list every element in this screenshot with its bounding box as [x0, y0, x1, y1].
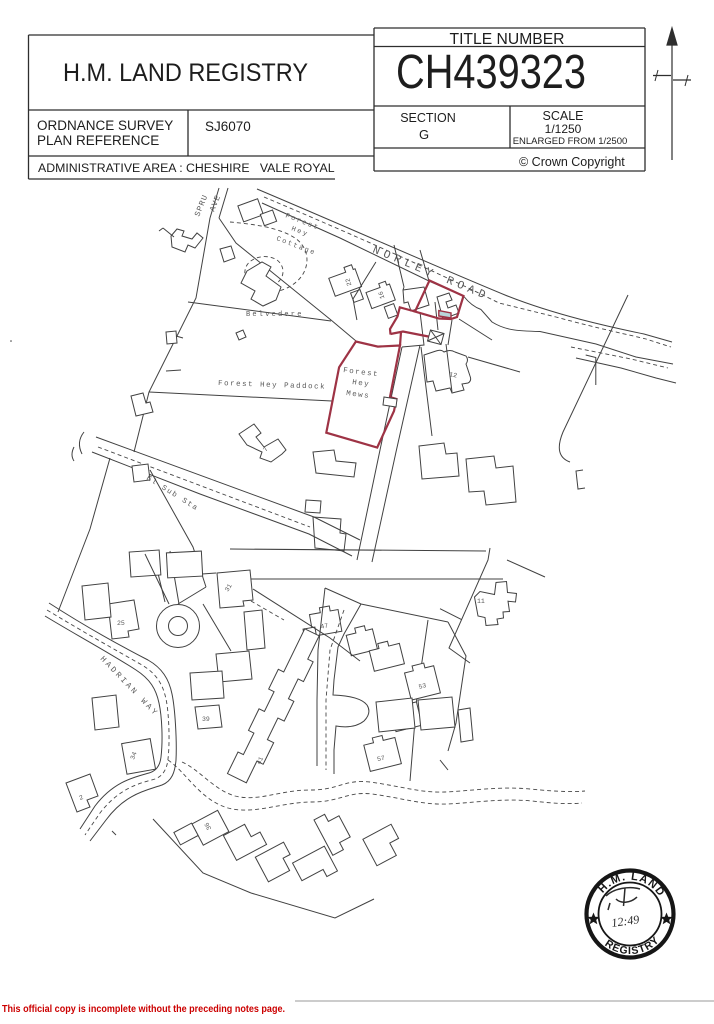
svg-text:11: 11 — [477, 598, 485, 605]
svg-text:ADMINISTRATIVE AREA : CHESHIRE: ADMINISTRATIVE AREA : CHESHIRE VALE ROYA… — [38, 161, 335, 175]
svg-text:G: G — [419, 127, 429, 142]
svg-text:© Crown Copyright: © Crown Copyright — [519, 155, 625, 169]
svg-text:SCALE: SCALE — [543, 109, 584, 123]
svg-text:Belvedere: Belvedere — [246, 311, 304, 319]
svg-text:PLAN REFERENCE: PLAN REFERENCE — [37, 133, 159, 148]
svg-text:1/1250: 1/1250 — [545, 122, 582, 136]
svg-text:ORDNANCE SURVEY: ORDNANCE SURVEY — [37, 118, 173, 133]
svg-text:H.M. LAND REGISTRY: H.M. LAND REGISTRY — [63, 59, 308, 87]
svg-text:This official copy is incomple: This official copy is incomplete without… — [2, 1003, 285, 1015]
svg-text:CH439323: CH439323 — [396, 46, 586, 99]
svg-text:25: 25 — [117, 620, 125, 627]
svg-text:SJ6070: SJ6070 — [205, 119, 251, 134]
svg-text:SECTION: SECTION — [400, 111, 456, 125]
svg-text:ENLARGED FROM 1/2500: ENLARGED FROM 1/2500 — [513, 136, 628, 147]
svg-text:39: 39 — [202, 716, 210, 723]
